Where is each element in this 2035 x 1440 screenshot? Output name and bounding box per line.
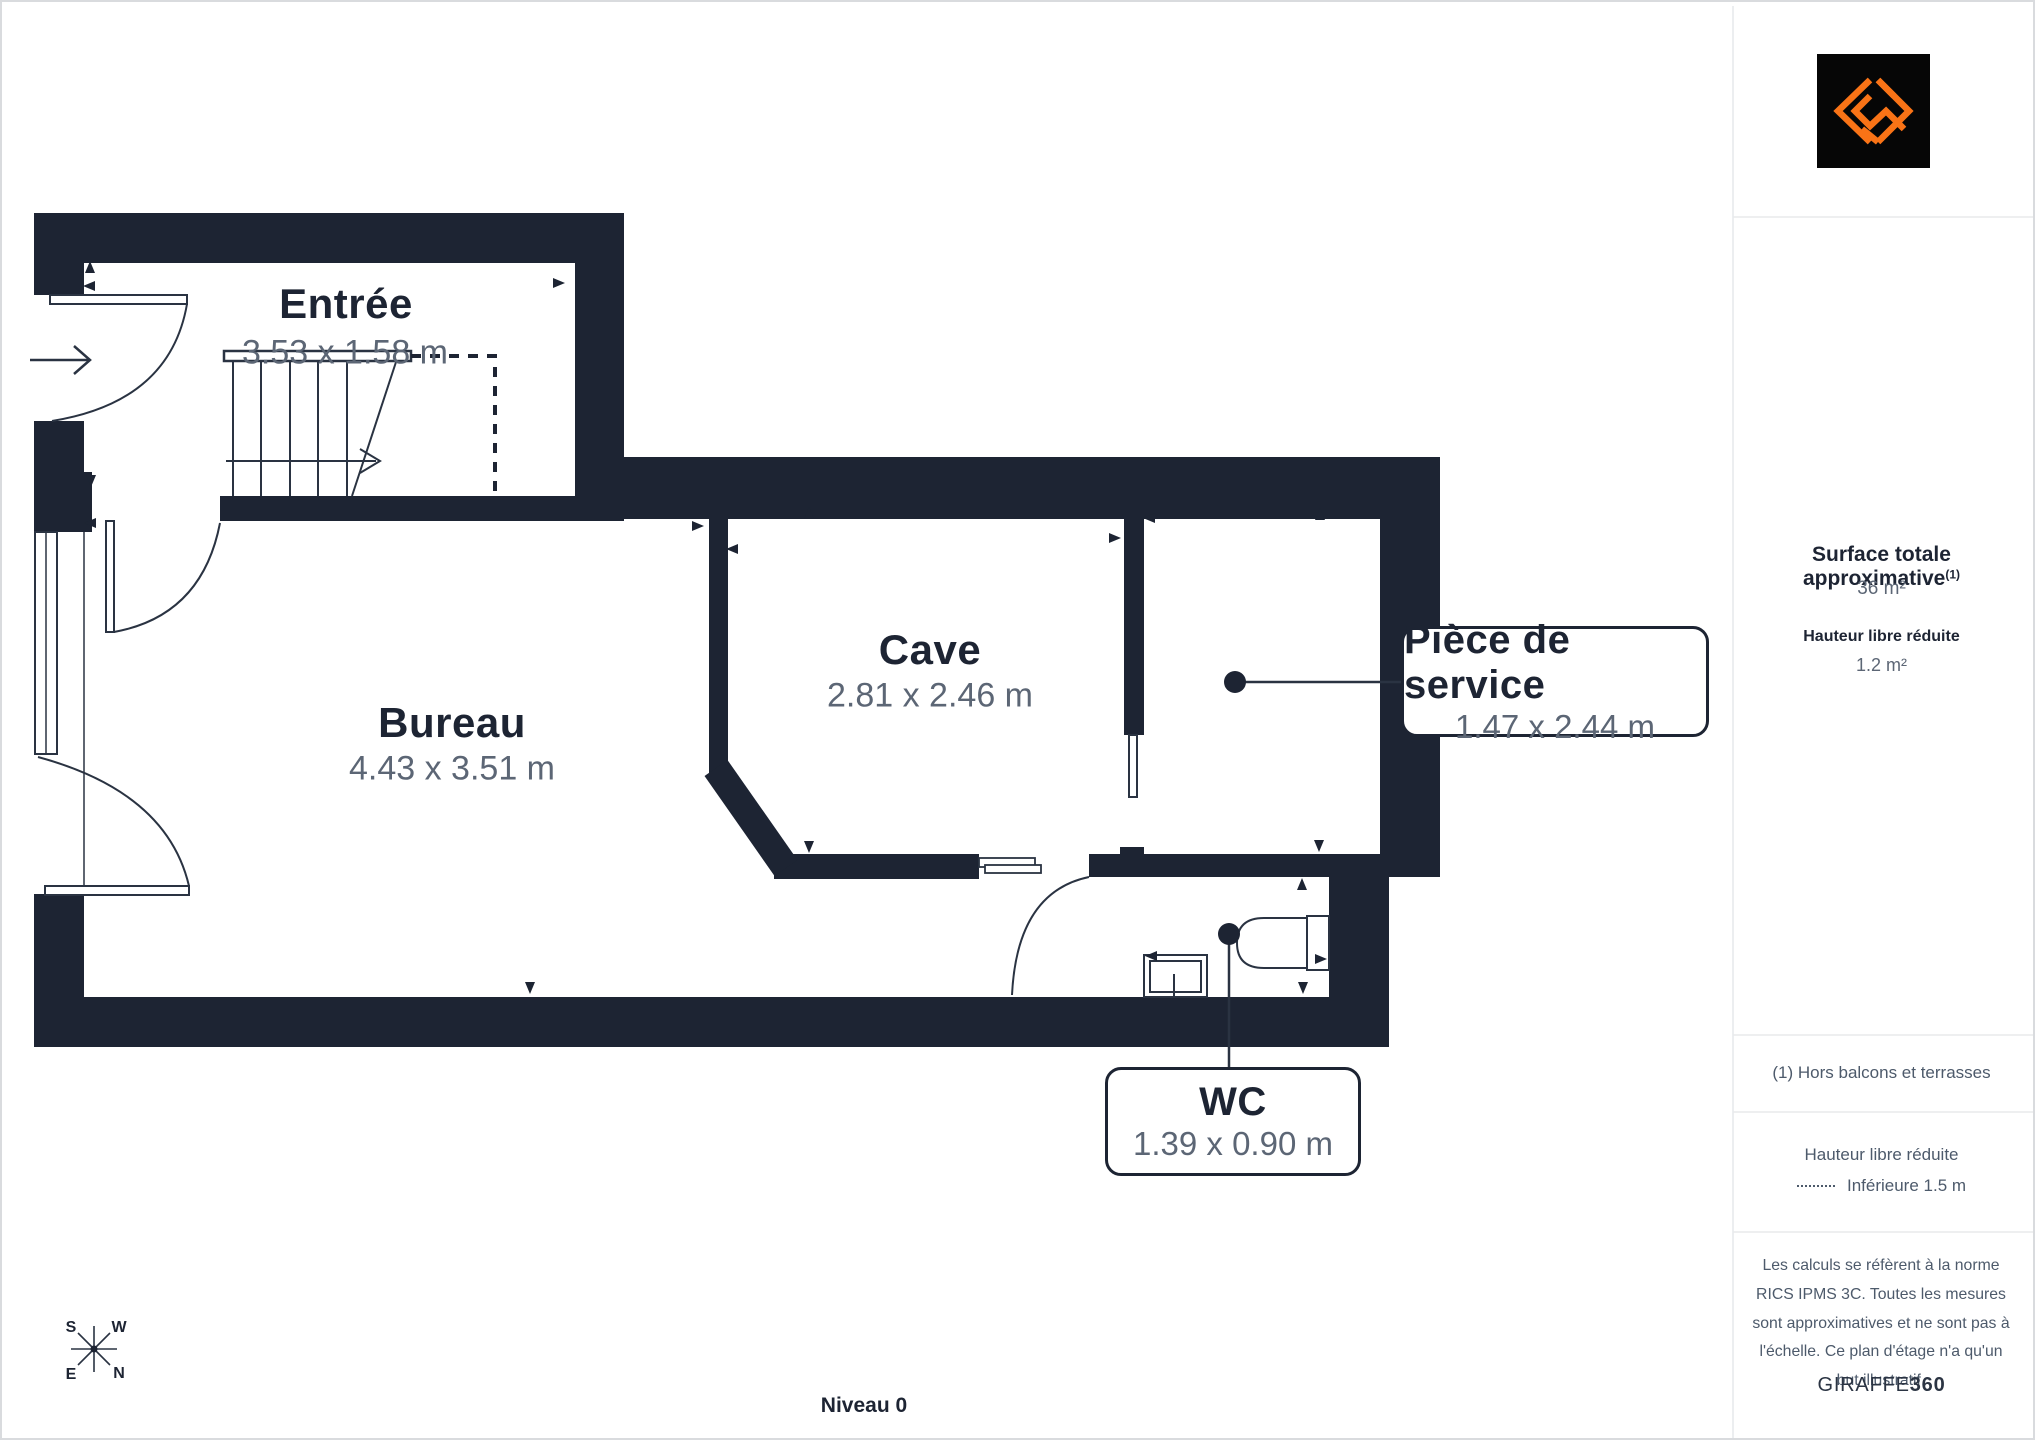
compass-w: W: [111, 1319, 126, 1337]
french-door-leaf: [45, 886, 189, 895]
entrance-arrow-icon: [30, 346, 90, 374]
wc-door-arc: [1012, 877, 1089, 995]
bureau-door-arc: [114, 523, 220, 632]
legend-row: Inférieure 1.5 m: [1733, 1176, 2030, 1196]
brand: GIRAFFE360: [1733, 1374, 2030, 1397]
callout-title: Pièce de service: [1404, 618, 1706, 708]
entrance-door-arc: [52, 304, 187, 421]
floor-plan-svg: [2, 2, 2035, 1440]
stairs: [224, 351, 411, 496]
page: Entrée 3.53 x 1.58 m Bureau 4.43 x 3.51 …: [0, 0, 2035, 1440]
cave-angled-wall: [716, 768, 786, 868]
room-dims-bureau: 4.43 x 3.51 m: [349, 750, 555, 789]
reduced-height-dashed-line: [411, 356, 495, 496]
room-name: Entrée: [279, 280, 413, 327]
room-label-cave: Cave: [879, 626, 981, 674]
bureau-door-leaf: [106, 521, 114, 632]
giraffe360-logo: [1817, 54, 1930, 168]
service-room-door-leaf: [1129, 735, 1137, 797]
compass-e: E: [66, 1366, 77, 1384]
callout-wc: WC 1.39 x 0.90 m: [1105, 1067, 1361, 1176]
level-label: Niveau 0: [821, 1394, 907, 1418]
legend-value: Inférieure 1.5 m: [1847, 1176, 1966, 1196]
callout-dims: 1.39 x 0.90 m: [1133, 1125, 1333, 1163]
room-dims-cave: 2.81 x 2.46 m: [827, 677, 1033, 716]
sliding-door-panel-2: [985, 865, 1041, 873]
callout-piece-de-service: Pièce de service 1.47 x 2.44 m: [1401, 626, 1709, 737]
compass-n: N: [113, 1365, 125, 1383]
surface-value: 36 m²: [1733, 578, 2030, 600]
sidebar-dividers: [1733, 6, 2033, 1438]
reduced-height-title: Hauteur libre réduite: [1733, 628, 2030, 646]
brand-suffix: 360: [1910, 1374, 1946, 1396]
french-door-arc: [38, 757, 189, 886]
legend-title: Hauteur libre réduite: [1733, 1145, 2030, 1165]
room-label-bureau: Bureau: [378, 699, 526, 747]
footnote: (1) Hors balcons et terrasses: [1733, 1063, 2030, 1083]
room-label-entree: Entrée: [279, 280, 413, 328]
reduced-height-value: 1.2 m²: [1733, 655, 2030, 676]
room-name: Bureau: [378, 699, 526, 746]
dashed-line-symbol: [1797, 1185, 1835, 1187]
brand-name: GIRAFFE: [1817, 1374, 1909, 1396]
room-name: Cave: [879, 626, 981, 673]
toilet-bowl: [1237, 918, 1307, 968]
callout-title: WC: [1199, 1080, 1267, 1125]
entrance-door-leaf: [50, 295, 187, 304]
compass-icon: [71, 1326, 117, 1372]
room-dims-entree: 3.53 x 1.58 m: [242, 334, 448, 373]
callout-dims: 1.47 x 2.44 m: [1455, 708, 1655, 746]
compass-s: S: [66, 1319, 77, 1337]
